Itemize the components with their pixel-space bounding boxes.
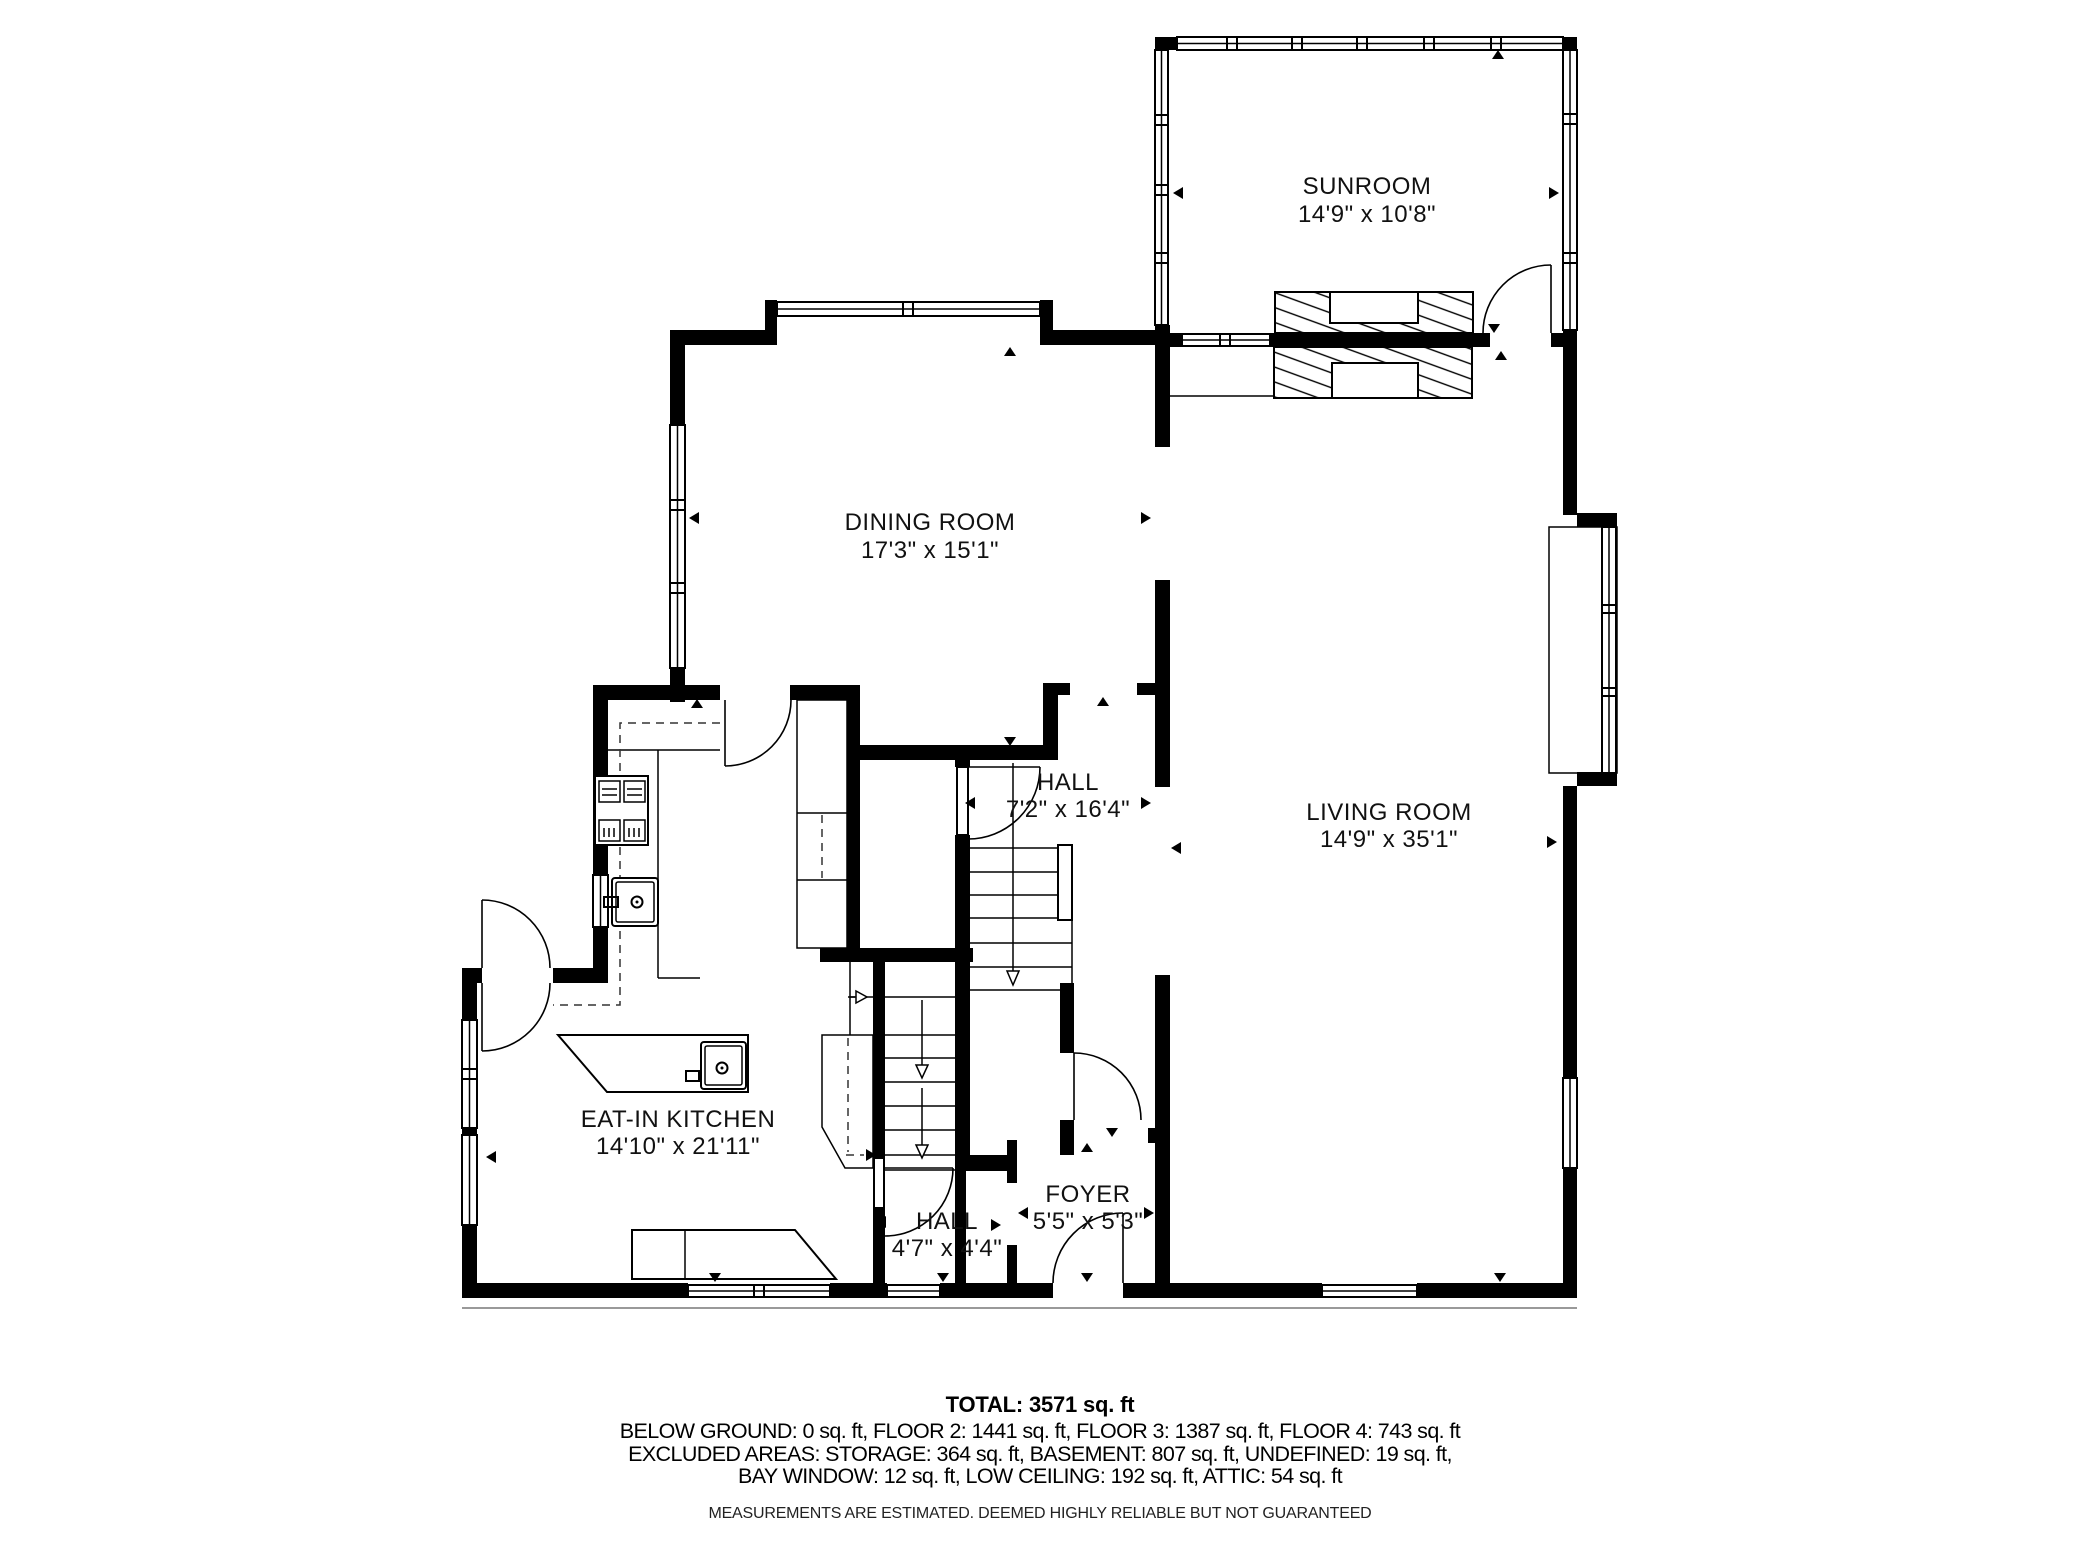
window-kitchen-left-1 — [462, 1020, 477, 1128]
label-hall-lower-dims: 4'7" x 4'4" — [892, 1235, 1002, 1262]
window-kitchen-sink — [593, 875, 608, 927]
label-hall-lower: HALL — [916, 1208, 978, 1235]
window-sunroom-top — [1177, 37, 1563, 50]
summary-floors: BELOW GROUND: 0 sq. ft, FLOOR 2: 1441 sq… — [620, 1419, 1461, 1443]
stove — [595, 776, 648, 845]
window-sunroom-left — [1155, 50, 1168, 325]
jamb-hall-closet — [957, 767, 968, 835]
window-hall-bottom — [887, 1285, 940, 1297]
label-kitchen: EAT-IN KITCHEN — [581, 1106, 776, 1133]
label-foyer-dims: 5'5" x 5'3" — [1033, 1208, 1143, 1235]
stair-run-arrow-2 — [916, 1145, 928, 1158]
window-sunroom-right — [1563, 50, 1577, 330]
label-hall-upper: HALL — [1037, 769, 1099, 796]
summary-excluded-2: BAY WINDOW: 12 sq. ft, LOW CEILING: 192 … — [738, 1464, 1343, 1488]
window-kitchen-left-2 — [462, 1135, 477, 1225]
summary-disclaimer: MEASUREMENTS ARE ESTIMATED. DEEMED HIGHL… — [708, 1505, 1371, 1522]
window-kitchen-bottom — [688, 1285, 830, 1297]
opening-markers — [486, 50, 1559, 1282]
window-living-bottom — [1322, 1285, 1417, 1297]
window-living-right — [1563, 1078, 1577, 1168]
window-seat-bench — [632, 1230, 836, 1279]
label-kitchen-dims: 14'10" x 21'11" — [596, 1133, 760, 1160]
stair-rail — [1058, 845, 1072, 920]
summary-total: TOTAL: 3571 sq. ft — [946, 1392, 1136, 1417]
stair-run-arrow-1 — [916, 1065, 928, 1078]
label-sunroom: SUNROOM — [1303, 173, 1432, 200]
label-hall-upper-dims: 7'2" x 16'4" — [1006, 796, 1130, 823]
stair-entry-arrow — [856, 991, 867, 1003]
window-sunroom-bottom — [1182, 334, 1270, 346]
kitchen-counters — [553, 723, 720, 1005]
pantry-cabinets — [797, 700, 847, 948]
label-dining-dims: 17'3" x 15'1" — [861, 537, 999, 564]
jamb-hall-lower — [874, 1158, 884, 1208]
label-foyer: FOYER — [1045, 1181, 1130, 1208]
label-living-dims: 14'9" x 35'1" — [1320, 826, 1458, 853]
kitchen-staircase — [822, 962, 960, 1170]
floor-plan-drawing: SUNROOM 14'9" x 10'8" DINING ROOM 17'3" … — [0, 0, 2080, 1559]
bay-window — [1549, 527, 1617, 773]
wall-sink — [604, 878, 658, 926]
window-dining-left — [670, 425, 685, 668]
door-kitchen-side-2 — [482, 983, 550, 1051]
door-kitchen-side-1 — [482, 900, 550, 968]
kitchen-island — [558, 1035, 748, 1092]
label-sunroom-dims: 14'9" x 10'8" — [1298, 201, 1436, 228]
door-sunroom — [1483, 265, 1551, 333]
window-dining-top — [777, 302, 1040, 316]
summary-block: TOTAL: 3571 sq. ft BELOW GROUND: 0 sq. f… — [620, 1392, 1461, 1522]
door-landing-living — [1074, 1053, 1141, 1120]
stair-down-arrow — [1007, 971, 1019, 985]
label-living: LIVING ROOM — [1306, 799, 1472, 826]
summary-excluded-1: EXCLUDED AREAS: STORAGE: 364 sq. ft, BAS… — [628, 1442, 1452, 1466]
door-kitchen-dining — [725, 700, 791, 766]
floor-plan-page: SUNROOM 14'9" x 10'8" DINING ROOM 17'3" … — [0, 0, 2080, 1559]
label-dining: DINING ROOM — [845, 509, 1016, 536]
